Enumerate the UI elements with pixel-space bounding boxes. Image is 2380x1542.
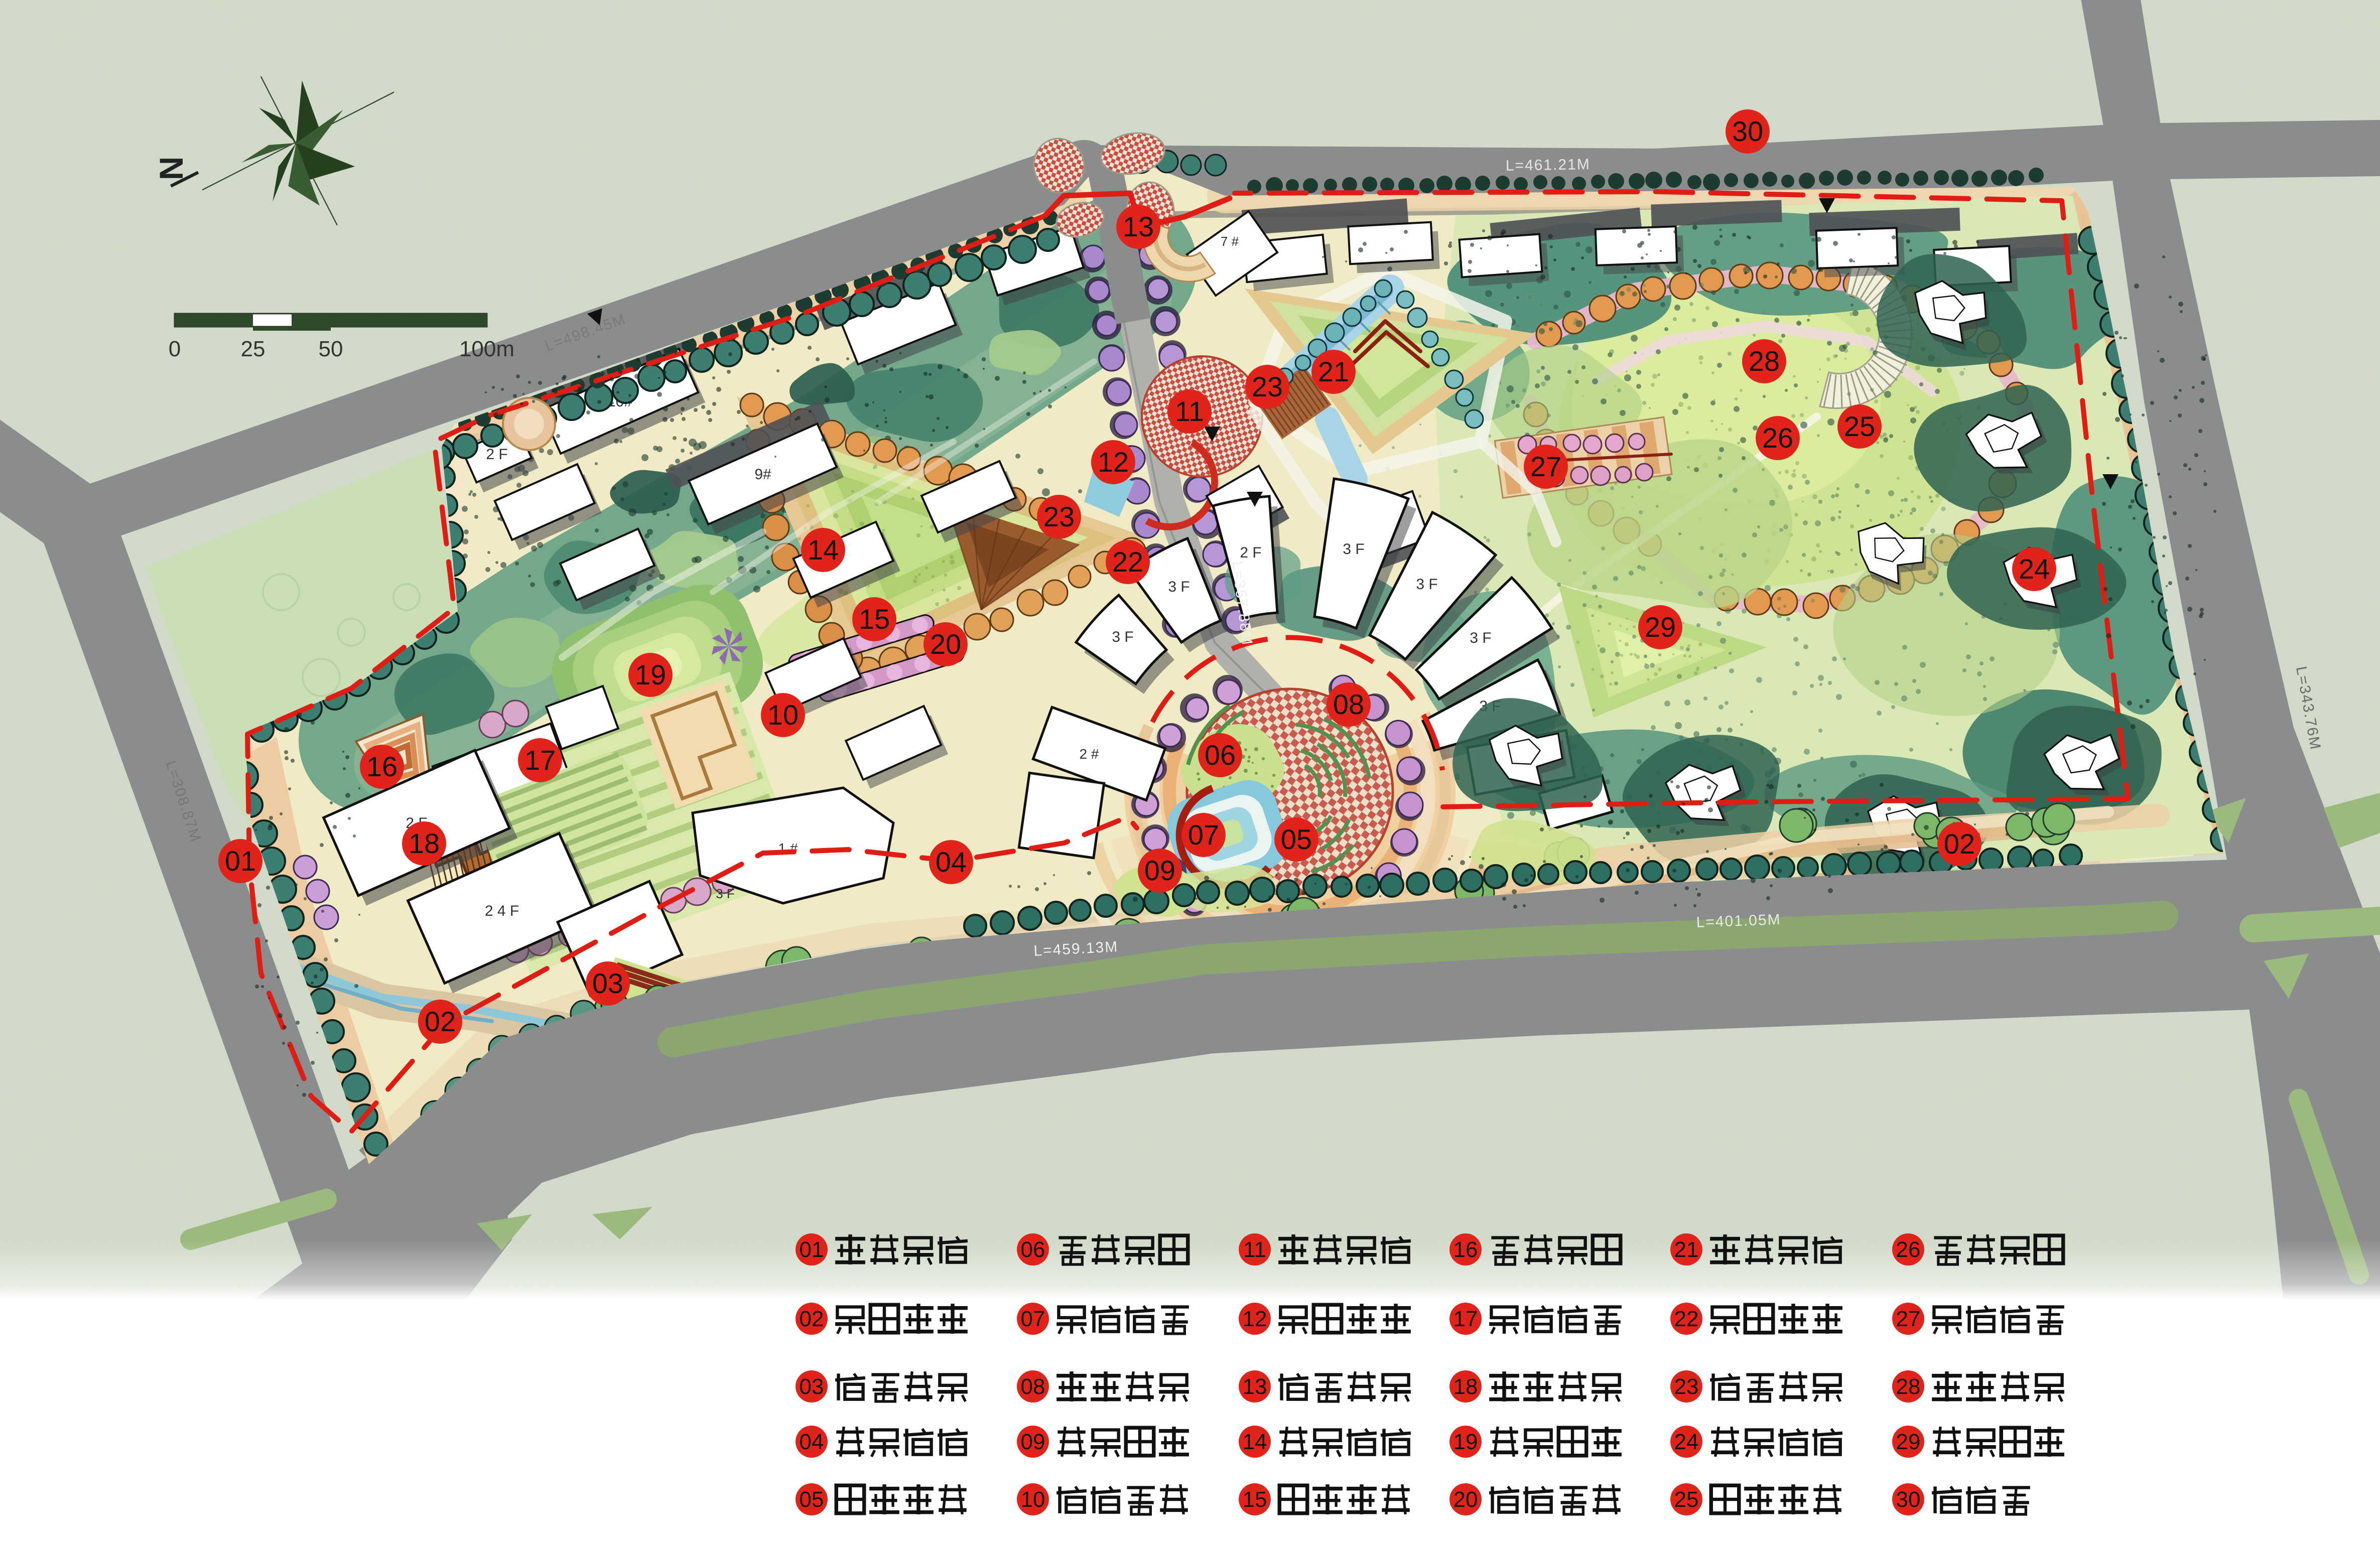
- svg-text:15: 15: [1243, 1487, 1267, 1512]
- svg-text:08: 08: [1021, 1374, 1045, 1399]
- svg-text:L=401.05M: L=401.05M: [1696, 911, 1781, 931]
- svg-text:12: 12: [1243, 1307, 1267, 1331]
- svg-text:24: 24: [2019, 553, 2050, 585]
- svg-text:18: 18: [409, 827, 440, 859]
- svg-text:04: 04: [936, 846, 967, 878]
- svg-text:30: 30: [1896, 1487, 1921, 1512]
- svg-text:23: 23: [1043, 501, 1075, 532]
- svg-text:06: 06: [1205, 739, 1236, 771]
- svg-text:01: 01: [800, 1237, 824, 1262]
- svg-text:15: 15: [859, 603, 890, 635]
- svg-text:27: 27: [1530, 451, 1561, 482]
- svg-text:20: 20: [930, 628, 961, 660]
- svg-text:100m: 100m: [459, 337, 514, 361]
- svg-text:28: 28: [1749, 345, 1780, 377]
- svg-text:14: 14: [1243, 1430, 1267, 1454]
- svg-text:3 F: 3 F: [716, 886, 735, 901]
- svg-text:13: 13: [1123, 211, 1154, 242]
- svg-text:02: 02: [425, 1006, 456, 1037]
- svg-text:50: 50: [319, 337, 343, 361]
- svg-text:L=461.21M: L=461.21M: [1506, 156, 1591, 174]
- svg-text:14: 14: [808, 534, 839, 566]
- svg-text:29: 29: [1645, 611, 1676, 643]
- svg-text:01: 01: [225, 845, 256, 877]
- svg-text:7 #: 7 #: [1221, 234, 1239, 249]
- svg-text:02: 02: [800, 1307, 824, 1331]
- svg-text:2 4 F: 2 4 F: [485, 903, 519, 919]
- svg-text:3 F: 3 F: [1168, 579, 1189, 595]
- svg-text:11: 11: [1243, 1237, 1266, 1262]
- svg-text:21: 21: [1674, 1237, 1699, 1262]
- svg-text:25: 25: [241, 337, 266, 361]
- svg-text:24: 24: [1674, 1430, 1699, 1454]
- svg-text:08: 08: [1333, 688, 1364, 720]
- svg-text:19: 19: [1453, 1430, 1478, 1454]
- svg-text:07: 07: [1021, 1307, 1045, 1331]
- svg-text:02: 02: [1944, 828, 1975, 860]
- svg-text:9#: 9#: [754, 466, 771, 483]
- svg-text:27: 27: [1896, 1307, 1921, 1331]
- svg-text:05: 05: [800, 1487, 824, 1512]
- svg-text:17: 17: [524, 744, 556, 776]
- svg-text:26: 26: [1896, 1237, 1921, 1262]
- svg-text:03: 03: [592, 967, 623, 999]
- svg-text:29: 29: [1896, 1430, 1921, 1454]
- svg-text:3 F: 3 F: [1343, 541, 1364, 557]
- svg-text:17: 17: [1453, 1307, 1478, 1331]
- svg-text:16: 16: [366, 751, 398, 782]
- svg-text:11: 11: [1175, 395, 1204, 427]
- svg-text:04: 04: [800, 1430, 824, 1454]
- svg-text:23: 23: [1674, 1374, 1699, 1399]
- svg-text:2 F: 2 F: [486, 446, 507, 463]
- svg-text:30: 30: [1732, 115, 1763, 147]
- svg-text:05: 05: [1281, 823, 1312, 855]
- svg-text:20: 20: [1453, 1487, 1478, 1512]
- svg-text:09: 09: [1021, 1430, 1045, 1454]
- svg-text:3 F: 3 F: [1470, 630, 1491, 646]
- svg-text:10: 10: [767, 699, 799, 731]
- svg-text:2 #: 2 #: [1080, 746, 1099, 762]
- svg-text:03: 03: [800, 1374, 824, 1399]
- svg-text:18: 18: [1453, 1374, 1478, 1399]
- svg-text:3 F: 3 F: [1112, 629, 1133, 645]
- svg-text:21: 21: [1318, 356, 1349, 387]
- svg-text:26: 26: [1762, 422, 1793, 454]
- svg-text:2 F: 2 F: [1240, 544, 1261, 561]
- svg-text:10: 10: [1021, 1487, 1045, 1512]
- svg-text:07: 07: [1188, 819, 1219, 851]
- svg-text:19: 19: [635, 659, 666, 690]
- svg-text:06: 06: [1021, 1237, 1045, 1262]
- svg-text:13: 13: [1243, 1374, 1267, 1399]
- svg-text:3 F: 3 F: [1416, 576, 1437, 593]
- svg-text:16: 16: [1453, 1237, 1478, 1262]
- svg-text:25: 25: [1844, 410, 1875, 442]
- svg-text:23: 23: [1252, 371, 1283, 402]
- svg-text:28: 28: [1896, 1374, 1921, 1399]
- svg-text:0: 0: [169, 337, 181, 361]
- svg-text:22: 22: [1674, 1307, 1699, 1331]
- svg-text:12: 12: [1098, 446, 1129, 478]
- svg-text:09: 09: [1144, 855, 1175, 886]
- svg-text:25: 25: [1674, 1487, 1699, 1512]
- svg-text:N: N: [153, 157, 190, 180]
- svg-text:22: 22: [1112, 546, 1143, 578]
